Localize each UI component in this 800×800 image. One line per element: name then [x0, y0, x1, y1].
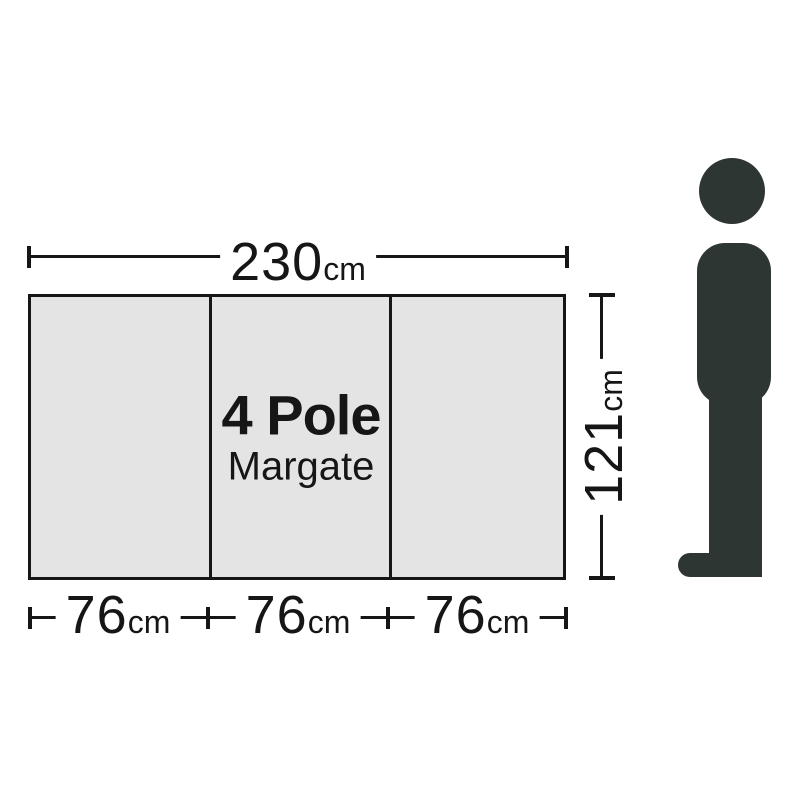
- height-unit: cm: [593, 369, 629, 412]
- panel-width-unit-3: cm: [487, 604, 530, 640]
- panel-divider-2: [389, 297, 392, 577]
- person-head: [699, 158, 765, 224]
- width-value: 230: [230, 232, 323, 292]
- person-foot: [678, 553, 736, 577]
- product-name-line2: Margate: [222, 447, 381, 487]
- width-dimension-label: 230cm: [220, 235, 376, 289]
- panel-width-unit-2: cm: [308, 604, 351, 640]
- panel-width-value-2: 76: [246, 585, 308, 645]
- height-dimension-cap-top: [589, 293, 615, 297]
- panel-widths-tick-2: [386, 607, 390, 629]
- panel-widths-cap-right: [564, 607, 568, 629]
- product-dimension-diagram: 230cm 4 Pole Margate 121cm 76cm 76cm: [0, 0, 800, 800]
- product-name-line1: 4 Pole: [222, 388, 381, 444]
- width-dimension-cap-left: [27, 246, 31, 268]
- height-value: 121: [574, 412, 634, 505]
- panel-width-label-2: 76cm: [236, 588, 361, 642]
- product-label: 4 Pole Margate: [222, 388, 381, 487]
- person-torso: [697, 243, 771, 405]
- person-leg: [709, 385, 762, 577]
- height-dimension-cap-bottom: [589, 576, 615, 580]
- width-unit: cm: [323, 251, 366, 287]
- panel-widths-dimension: 76cm 76cm 76cm: [28, 607, 568, 629]
- height-dimension: 121cm: [589, 293, 615, 580]
- panel-width-value-1: 76: [66, 585, 128, 645]
- height-dimension-label: 121cm: [577, 359, 631, 515]
- panel-width-unit-1: cm: [128, 604, 171, 640]
- panel-widths-tick-1: [206, 607, 210, 629]
- width-dimension-cap-right: [565, 246, 569, 268]
- panel-widths-cap-left: [28, 607, 32, 629]
- panel-width-label-1: 76cm: [56, 588, 181, 642]
- floorplan-rectangle: 4 Pole Margate: [28, 294, 566, 580]
- panel-width-label-3: 76cm: [415, 588, 540, 642]
- person-silhouette-icon: [660, 155, 780, 585]
- width-dimension: 230cm: [27, 246, 569, 268]
- panel-divider-1: [209, 297, 212, 577]
- panel-width-value-3: 76: [425, 585, 487, 645]
